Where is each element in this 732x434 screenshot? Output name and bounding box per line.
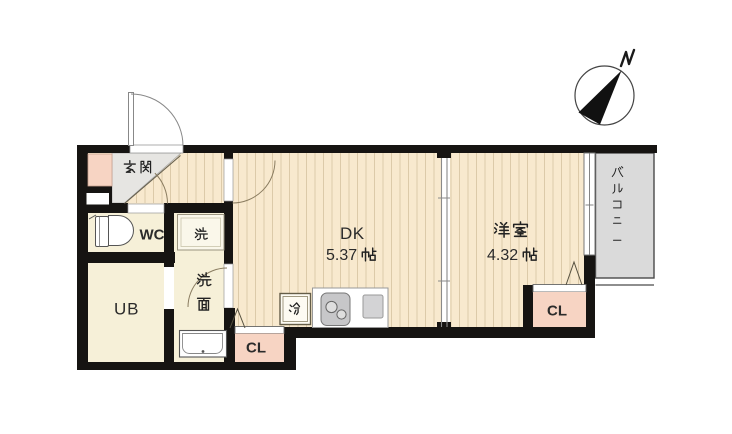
svg-text:CL: CL: [547, 303, 567, 320]
svg-text:UB: UB: [114, 300, 139, 319]
svg-text:4.32: 4.32: [487, 247, 518, 264]
svg-text:CL: CL: [246, 340, 266, 357]
svg-text:5.37: 5.37: [326, 247, 357, 264]
svg-text:WC: WC: [140, 227, 165, 244]
svg-text:DK: DK: [340, 224, 365, 243]
